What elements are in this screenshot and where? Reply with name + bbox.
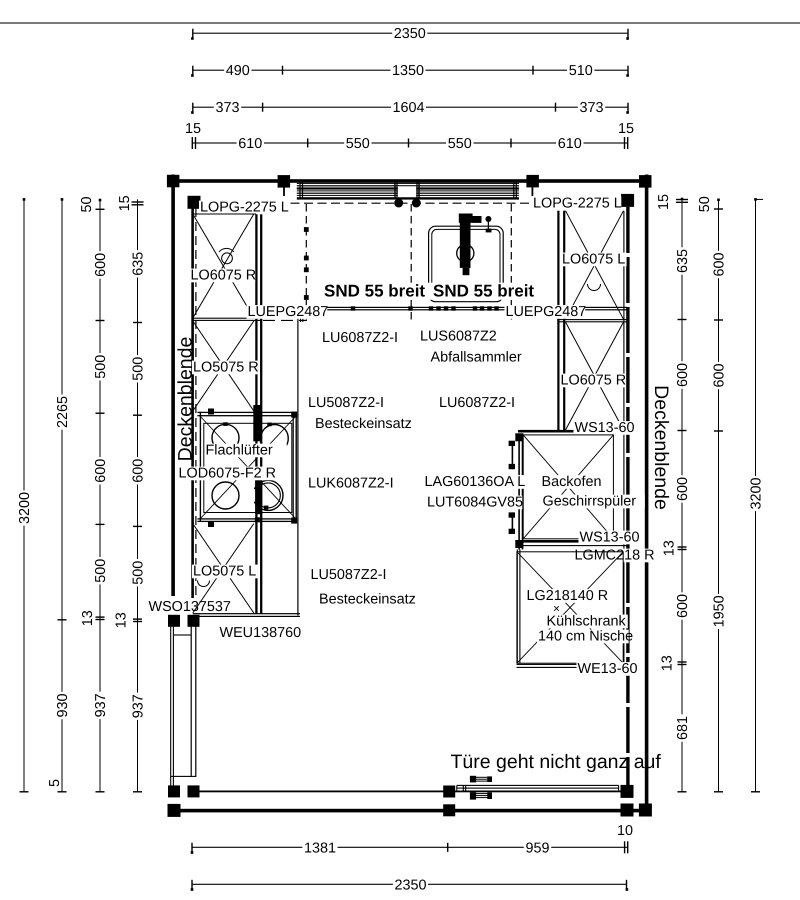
svg-text:LOPG-2275 L: LOPG-2275 L xyxy=(533,196,622,212)
svg-text:LO6075 R: LO6075 R xyxy=(191,268,257,284)
svg-text:LO6075 L: LO6075 L xyxy=(562,252,625,268)
svg-text:959: 959 xyxy=(525,840,549,856)
svg-text:50: 50 xyxy=(79,196,95,212)
svg-text:500: 500 xyxy=(93,559,109,583)
svg-text:Türe geht nicht ganz auf: Türe geht nicht ganz auf xyxy=(451,751,662,773)
svg-text:LO5075 L: LO5075 L xyxy=(193,564,256,580)
svg-text:937: 937 xyxy=(131,694,147,718)
svg-text:510: 510 xyxy=(569,63,593,79)
svg-text:1950: 1950 xyxy=(712,595,728,627)
svg-text:10: 10 xyxy=(617,823,633,839)
svg-text:LU6087Z2-I: LU6087Z2-I xyxy=(439,395,515,411)
svg-text:Backofen: Backofen xyxy=(542,474,602,490)
svg-text:LU6087Z2-I: LU6087Z2-I xyxy=(322,330,398,346)
svg-text:600: 600 xyxy=(675,363,691,387)
svg-text:LO5075 R: LO5075 R xyxy=(193,360,259,376)
svg-text:LUS6087Z2: LUS6087Z2 xyxy=(420,329,497,345)
svg-text:SND 55 breit: SND 55 breit xyxy=(433,281,534,300)
svg-text:500: 500 xyxy=(131,357,147,381)
svg-text:13: 13 xyxy=(114,612,130,628)
svg-text:635: 635 xyxy=(131,252,147,276)
svg-text:WS13-60: WS13-60 xyxy=(575,420,635,436)
svg-text:15: 15 xyxy=(618,121,634,137)
svg-text:500: 500 xyxy=(93,355,109,379)
svg-text:Flachlüfter: Flachlüfter xyxy=(206,443,273,459)
svg-text:490: 490 xyxy=(226,63,250,79)
svg-text:15: 15 xyxy=(656,194,672,210)
svg-text:SND 55 breit: SND 55 breit xyxy=(324,281,425,300)
svg-text:LAG60136OA L: LAG60136OA L xyxy=(425,474,526,490)
svg-text:LG218140 R: LG218140 R xyxy=(527,588,609,604)
svg-text:2350: 2350 xyxy=(394,26,426,42)
svg-text:5: 5 xyxy=(47,779,63,787)
svg-text:600: 600 xyxy=(712,252,728,276)
svg-text:1350: 1350 xyxy=(392,63,424,79)
svg-text:LOD6075-F2 R: LOD6075-F2 R xyxy=(179,466,277,482)
svg-text:373: 373 xyxy=(579,100,603,116)
svg-text:WSO137537: WSO137537 xyxy=(149,599,231,615)
svg-text:2350: 2350 xyxy=(394,877,426,893)
svg-text:Besteckeinsatz: Besteckeinsatz xyxy=(319,592,416,608)
svg-text:373: 373 xyxy=(215,100,239,116)
svg-text:140 cm Nische: 140 cm Nische xyxy=(538,629,633,645)
svg-text:3200: 3200 xyxy=(749,477,765,509)
svg-text:1604: 1604 xyxy=(392,100,424,116)
svg-text:LOPG-2275 L: LOPG-2275 L xyxy=(200,200,289,216)
svg-text:15: 15 xyxy=(185,121,201,137)
svg-text:15: 15 xyxy=(117,195,133,211)
svg-text:LU5087Z2-I: LU5087Z2-I xyxy=(311,567,387,583)
svg-text:930: 930 xyxy=(55,693,71,717)
svg-text:610: 610 xyxy=(238,136,262,152)
svg-text:WE13-60: WE13-60 xyxy=(578,661,638,677)
svg-text:600: 600 xyxy=(93,459,109,483)
svg-text:681: 681 xyxy=(675,716,691,740)
svg-text:13: 13 xyxy=(80,610,96,626)
svg-text:1381: 1381 xyxy=(304,840,336,856)
svg-text:LO6075 R: LO6075 R xyxy=(561,373,627,389)
svg-text:WS13-60: WS13-60 xyxy=(580,530,640,546)
svg-text:500: 500 xyxy=(131,561,147,585)
svg-text:13: 13 xyxy=(662,540,678,556)
svg-text:50: 50 xyxy=(697,196,713,212)
svg-text:600: 600 xyxy=(675,477,691,501)
svg-text:937: 937 xyxy=(93,693,109,717)
svg-text:Geschirrspüler: Geschirrspüler xyxy=(543,494,637,510)
svg-text:Abfallsammler: Abfallsammler xyxy=(431,350,522,366)
svg-text:WEU138760: WEU138760 xyxy=(220,625,302,641)
svg-text:600: 600 xyxy=(712,363,728,387)
svg-text:Deckenblende: Deckenblende xyxy=(650,385,672,510)
svg-text:600: 600 xyxy=(93,253,109,277)
svg-text:600: 600 xyxy=(131,459,147,483)
svg-text:Kühlschrank: Kühlschrank xyxy=(547,614,627,630)
svg-text:2265: 2265 xyxy=(55,396,71,428)
svg-text:LUEPG2487: LUEPG2487 xyxy=(248,304,329,320)
svg-text:550: 550 xyxy=(448,136,472,152)
svg-text:635: 635 xyxy=(675,249,691,273)
svg-text:13: 13 xyxy=(660,655,676,671)
svg-text:LUK6087Z2-I: LUK6087Z2-I xyxy=(308,476,394,492)
svg-text:Besteckeinsatz: Besteckeinsatz xyxy=(315,416,412,432)
svg-text:3200: 3200 xyxy=(17,492,33,524)
svg-text:LU5087Z2-I: LU5087Z2-I xyxy=(308,395,384,411)
svg-text:Deckenblende: Deckenblende xyxy=(175,337,197,462)
svg-text:LUT6084GV85: LUT6084GV85 xyxy=(427,495,523,511)
svg-text:610: 610 xyxy=(558,136,582,152)
svg-text:LUEPG2487: LUEPG2487 xyxy=(506,304,587,320)
svg-text:600: 600 xyxy=(675,594,691,618)
svg-text:550: 550 xyxy=(346,136,370,152)
